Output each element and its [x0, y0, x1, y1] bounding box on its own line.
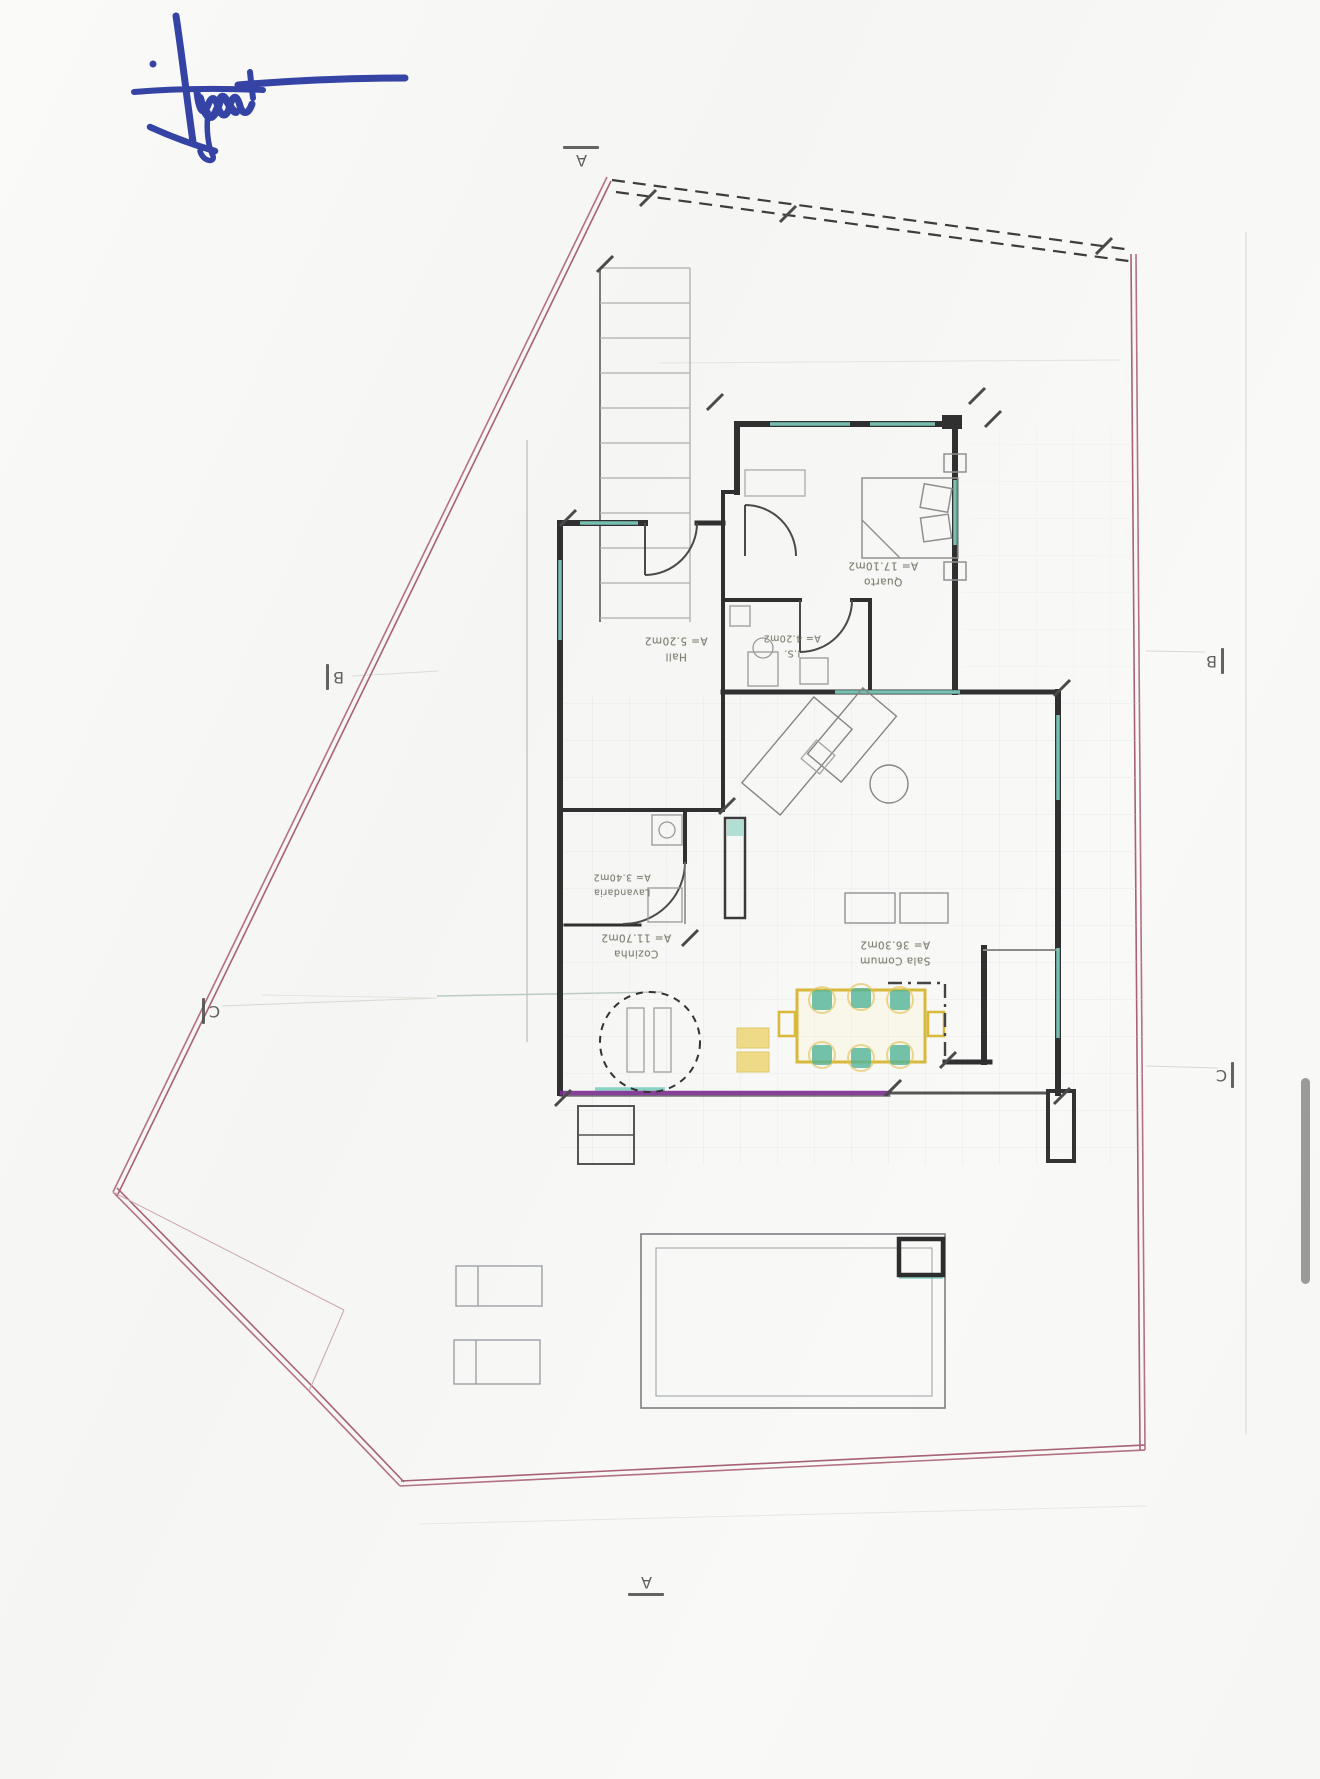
section-marker-a-bottom: A — [628, 1574, 664, 1596]
room-area: A= 4.20m2 — [763, 630, 821, 645]
section-marker-c-left: C — [202, 998, 220, 1024]
furniture-dining-set — [779, 984, 944, 1071]
room-label-is: I.S. A= 4.20m2 — [763, 630, 821, 659]
section-marker-tick — [628, 1593, 664, 1596]
section-marker-tick — [1231, 1062, 1234, 1088]
section-marker-tick — [563, 146, 599, 149]
room-name: Lavandaria — [594, 887, 651, 898]
signature-ink — [0, 0, 500, 200]
room-name: Cozinha — [614, 947, 659, 959]
pool — [641, 1234, 945, 1408]
section-marker-letter: A — [641, 1574, 652, 1590]
section-marker-letter: C — [1216, 1067, 1227, 1083]
page-root: A A B B C C Quarto A= 17.10m2 Hall A= 5.… — [0, 0, 1320, 1779]
room-area: A= 36.30m2 — [860, 936, 931, 952]
floor-plan-drawing — [0, 0, 1320, 1779]
room-name: Quarto — [864, 575, 903, 587]
room-name: Sala Comum — [860, 954, 931, 966]
section-marker-a-top: A — [563, 146, 599, 168]
section-marker-letter: A — [576, 152, 587, 168]
room-name: I.S. — [784, 648, 800, 659]
room-label-hall: Hall A= 5.20m2 — [644, 632, 707, 665]
section-marker-b-left: B — [326, 664, 344, 690]
room-name: Hall — [665, 650, 687, 662]
room-label-lavandaria: Lavandaria A= 3.40m2 — [593, 869, 651, 898]
room-label-cozinha: Cozinha A= 11.70m2 — [601, 929, 671, 962]
section-marker-c-right: C — [1216, 1062, 1234, 1088]
room-area: A= 3.40m2 — [593, 869, 651, 884]
section-marker-letter: C — [209, 1003, 220, 1019]
section-marker-tick — [326, 664, 329, 690]
room-label-quarto: Quarto A= 17.10m2 — [848, 557, 918, 590]
sun-loungers — [454, 1266, 542, 1384]
section-marker-letter: B — [333, 669, 344, 685]
room-area: A= 5.20m2 — [644, 632, 707, 648]
section-marker-b-right: B — [1206, 648, 1224, 674]
section-marker-tick — [202, 998, 205, 1024]
section-marker-letter: B — [1206, 653, 1217, 669]
room-area: A= 11.70m2 — [601, 929, 671, 945]
scrollbar-thumb[interactable] — [1301, 1078, 1310, 1284]
room-area: A= 17.10m2 — [848, 557, 918, 573]
boundary-dashed-line — [612, 180, 1136, 262]
room-label-sala-comum: Sala Comum A= 36.30m2 — [860, 936, 931, 969]
section-marker-tick — [1221, 648, 1224, 674]
